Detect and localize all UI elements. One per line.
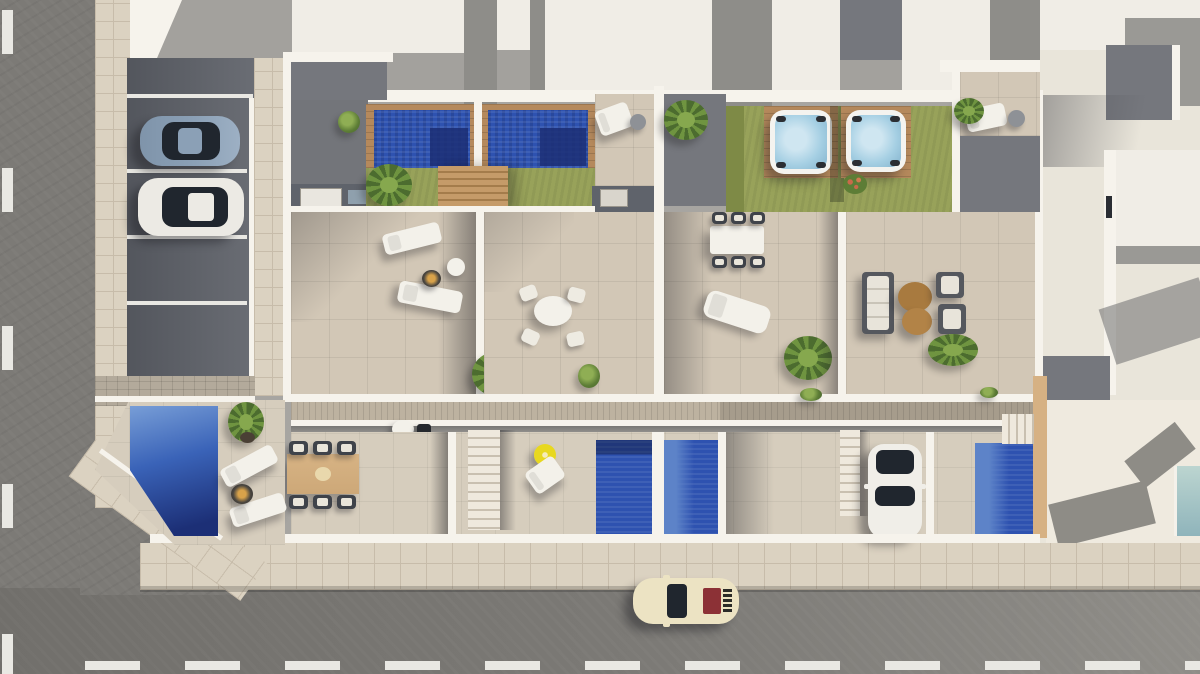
dining-chair-dark <box>750 212 765 224</box>
yard-wall <box>652 432 664 536</box>
parking-line <box>127 94 253 98</box>
neighbor-pool-glimpse <box>1174 466 1200 536</box>
yard-pool-d <box>975 443 1033 536</box>
classic-vent-slats <box>723 589 732 613</box>
hot-tub-c-water <box>775 115 827 169</box>
right-neighbor-roof-box <box>1106 45 1172 120</box>
yard-pool-b <box>596 440 652 538</box>
roof-palm <box>664 100 708 140</box>
stairs-unit-a <box>468 430 500 530</box>
lane-dash <box>2 634 13 674</box>
tub-headrest <box>776 116 786 122</box>
dining-chair-dark <box>750 256 765 268</box>
ne-plant <box>954 98 984 124</box>
lane-dash <box>2 326 13 370</box>
timber-dining-table <box>287 454 359 494</box>
parking-line <box>127 169 247 173</box>
sofa <box>862 272 894 334</box>
coffee-table-round <box>902 308 932 335</box>
timber-set-chair <box>337 441 356 455</box>
white-roof-1 <box>292 0 464 53</box>
walkway-plant <box>800 388 822 401</box>
lane-dash <box>2 484 13 528</box>
lawn-shade-strip <box>726 106 744 212</box>
round-side-table <box>1008 110 1025 127</box>
lawn-c-d <box>726 106 952 212</box>
tub-headrest <box>890 160 900 166</box>
roof-pool-a-deep-end <box>430 128 468 166</box>
timber-set-chair <box>313 495 332 509</box>
armchair-cushion <box>941 276 959 294</box>
suv-mirror <box>864 484 870 489</box>
armchair-cushion <box>943 309 961 329</box>
timber-set-chair <box>289 495 308 509</box>
tub-headrest <box>852 160 862 166</box>
terrace-palm <box>928 334 978 366</box>
round-side-table <box>630 114 646 130</box>
timber-set-chair <box>313 441 332 455</box>
lane-dash-line-bottom <box>85 661 1200 670</box>
stairs-ne-entry <box>1002 414 1034 444</box>
gray-roof-box-top <box>840 0 902 60</box>
dining-chair-dark <box>712 212 727 224</box>
tub-headrest <box>776 162 786 168</box>
classic-rear-vent <box>703 588 721 614</box>
terrace-palm <box>784 336 832 380</box>
right-neighbor-roof-6 <box>1116 150 1200 250</box>
wall-lawn-ne <box>952 72 960 212</box>
ac-unit <box>348 190 366 204</box>
walkway-parapet <box>283 394 1040 402</box>
tub-headrest <box>816 162 826 168</box>
yard-pool-c <box>664 440 718 540</box>
dining-chair-dark <box>731 256 746 268</box>
yard-wall <box>926 432 934 536</box>
ac-unit <box>300 188 342 208</box>
white-hatchback-car <box>138 178 244 236</box>
villa-top-wall <box>95 396 255 402</box>
dining-chair-dark <box>712 256 727 268</box>
terrace-grass-tuft <box>578 364 600 388</box>
timber-pool-wall <box>1033 376 1047 538</box>
suv-rear-glass <box>876 450 914 474</box>
right-neighbor-roof-edge-band <box>1116 246 1200 264</box>
timber-set-chair <box>337 495 356 509</box>
armchair <box>938 304 966 334</box>
right-neighbor-roof-box-edge <box>1172 45 1180 120</box>
yard-wall <box>718 432 726 536</box>
tub-headrest <box>852 116 862 122</box>
building-west-path <box>254 58 284 396</box>
right-neighbor-door-slot <box>1106 196 1112 218</box>
lane-dash <box>2 168 13 212</box>
parking-line <box>127 301 247 305</box>
hot-tub-d <box>846 110 906 172</box>
flower-bush <box>843 174 867 194</box>
wall-c-d <box>838 212 846 396</box>
unit-a-roofbox <box>291 62 387 100</box>
white-suv-car <box>868 444 922 538</box>
tub-headrest <box>816 116 826 122</box>
unit-a-roofbox-parapet <box>283 52 393 62</box>
hatch-roof <box>188 193 214 221</box>
roof-gap-shadow-2 <box>530 0 545 97</box>
ac-unit <box>600 189 628 207</box>
lane-dash <box>2 10 13 54</box>
armchair <box>936 272 964 298</box>
classic-mirror <box>663 622 670 627</box>
table-centerpiece <box>315 467 331 481</box>
sofa-cushions <box>867 276 889 330</box>
rect-dining-table <box>710 226 764 254</box>
walkway-plant <box>980 387 998 398</box>
wall-b-c <box>654 86 664 396</box>
hot-tub-c <box>770 110 832 174</box>
yard-wall <box>448 432 456 536</box>
tub-headrest <box>890 116 900 122</box>
dining-chair-dark <box>731 212 746 224</box>
roof-bush <box>338 111 360 133</box>
classic-windshield <box>667 584 687 618</box>
cream-classic-car <box>633 578 739 624</box>
ne-terrace-parapet <box>940 60 1040 72</box>
white-roof-2 <box>497 0 530 50</box>
classic-mirror <box>663 575 670 580</box>
stairs-unit-c <box>840 430 860 516</box>
front-walkway <box>291 402 1035 422</box>
silver-sedan-car <box>140 116 240 166</box>
suv-windshield <box>875 486 915 506</box>
round-side-table <box>447 258 465 276</box>
aerial-scene <box>0 0 1200 674</box>
ne-gray-roof <box>960 136 1040 212</box>
wood-stairs-a-b <box>438 166 508 210</box>
building-west-wall <box>283 58 291 398</box>
timber-set-chair <box>289 441 308 455</box>
white-roof-4 <box>772 0 840 97</box>
lawn-palm <box>366 164 412 206</box>
round-dining-table <box>534 296 572 326</box>
villa-plant-pot <box>240 432 255 443</box>
fire-pit <box>422 270 441 287</box>
white-roof-3 <box>545 0 712 95</box>
villa-fire-pit <box>231 484 253 504</box>
sedan-roof <box>178 128 202 154</box>
roof-pool-b-deep-end <box>540 128 586 166</box>
